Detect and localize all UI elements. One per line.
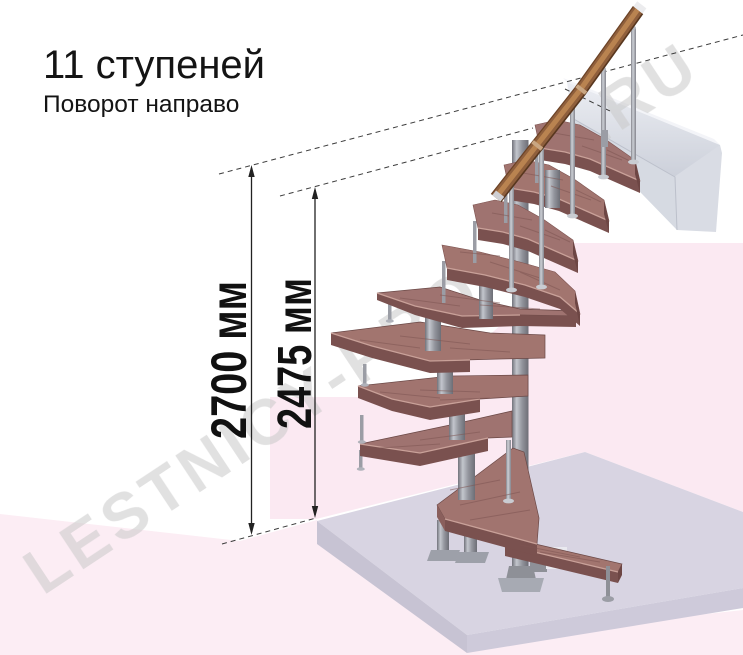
svg-text:11 ступеней: 11 ступеней: [43, 43, 265, 87]
svg-text:2475 мм: 2475 мм: [269, 278, 322, 429]
svg-text:2700 мм: 2700 мм: [201, 281, 257, 439]
svg-text:Поворот направо: Поворот направо: [43, 91, 239, 118]
